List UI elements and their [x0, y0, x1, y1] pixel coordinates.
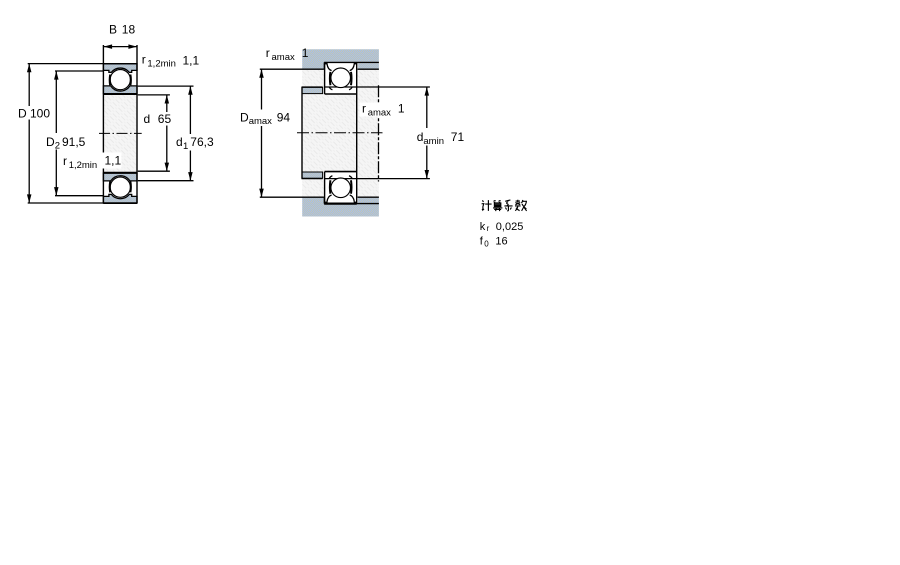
svg-text:1: 1 — [398, 102, 405, 116]
svg-text:r: r — [487, 224, 490, 233]
svg-text:1,1: 1,1 — [183, 53, 200, 67]
svg-text:k: k — [480, 221, 486, 233]
svg-text:D 100: D 100 — [18, 106, 50, 120]
svg-text:amax: amax — [249, 116, 272, 127]
svg-text:0,025: 0,025 — [496, 221, 524, 233]
svg-text:amax: amax — [272, 52, 295, 63]
svg-text:65: 65 — [158, 112, 172, 126]
svg-text:amax: amax — [368, 107, 391, 118]
svg-text:18: 18 — [122, 23, 136, 37]
svg-text:2: 2 — [55, 141, 60, 152]
svg-text:r: r — [63, 154, 67, 168]
svg-text:r: r — [266, 46, 270, 60]
svg-text:1: 1 — [302, 46, 309, 60]
svg-text:1: 1 — [183, 141, 188, 152]
svg-text:76,3: 76,3 — [190, 135, 214, 149]
svg-text:amin: amin — [423, 136, 444, 147]
svg-text:f: f — [480, 236, 484, 248]
svg-text:r: r — [362, 102, 366, 116]
svg-text:d: d — [176, 135, 183, 149]
svg-text:D: D — [240, 111, 249, 125]
svg-text:91,5: 91,5 — [62, 135, 86, 149]
svg-text:d: d — [417, 130, 424, 144]
svg-text:d: d — [144, 112, 151, 126]
svg-text:0: 0 — [484, 239, 489, 248]
svg-text:71: 71 — [451, 130, 465, 144]
svg-text:1,2min: 1,2min — [147, 59, 176, 70]
svg-text:r: r — [142, 52, 146, 66]
svg-text:94: 94 — [277, 110, 291, 124]
svg-text:16: 16 — [495, 236, 507, 248]
svg-text:1,2min: 1,2min — [69, 160, 98, 171]
svg-text:1,1: 1,1 — [105, 153, 122, 167]
svg-text:B: B — [109, 23, 117, 37]
svg-text:D: D — [46, 135, 55, 149]
